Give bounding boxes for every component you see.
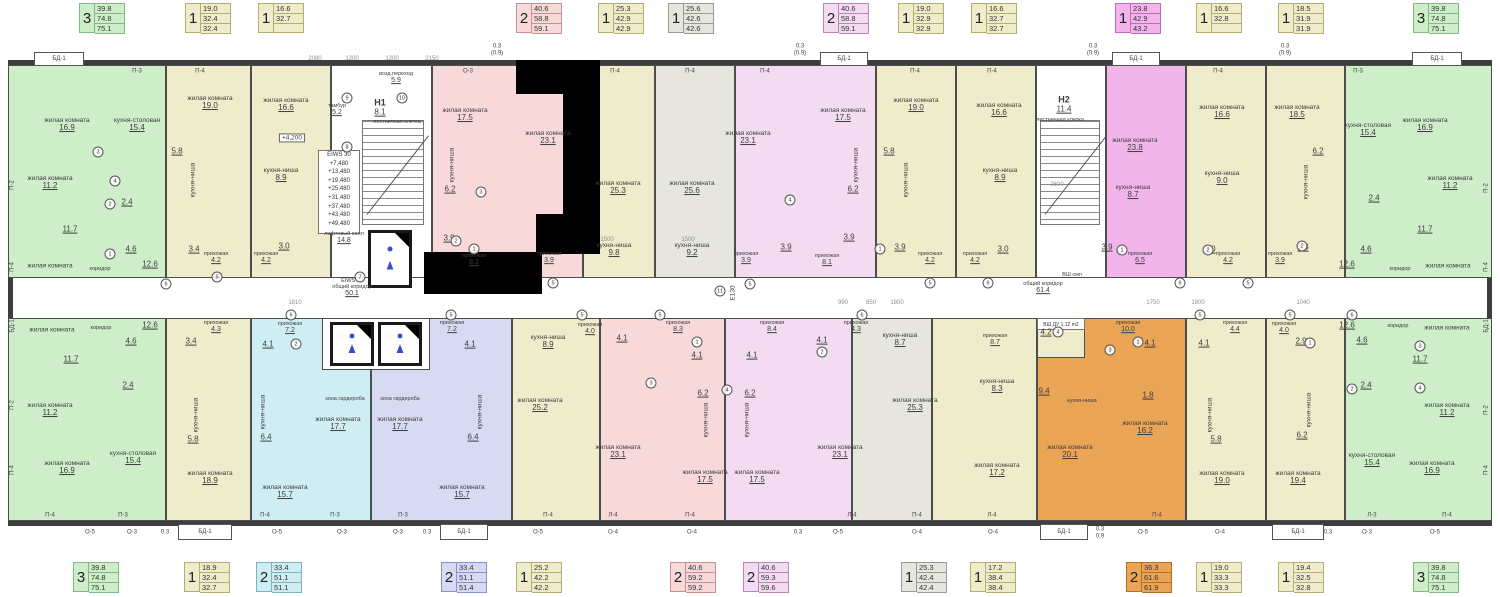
keynote-circle: 1 xyxy=(875,244,886,255)
masked-section-block xyxy=(424,252,542,294)
unit-area-value: 31.9 xyxy=(1294,24,1324,34)
unit-area-value: 19.0 xyxy=(1212,562,1242,573)
masked-section-block xyxy=(563,88,600,218)
axis-label-bottom: П-4 xyxy=(1442,513,1452,520)
unit-area-value: 33.3 xyxy=(1212,573,1242,583)
unit-area-value xyxy=(274,24,304,33)
unit-badge[interactable]: 236.361.661.9 xyxy=(1126,562,1172,592)
unit-area-value: 61.9 xyxy=(1142,583,1172,593)
keynote-circle: 5 xyxy=(212,272,223,283)
unit-area-value: 25.6 xyxy=(684,3,714,14)
dimension-label: 1200 xyxy=(345,56,358,62)
offset-label-bottom: О-4 xyxy=(608,530,618,537)
unit-area-value: 40.6 xyxy=(839,3,869,14)
offset-label-bottom: 0.3 0.9 xyxy=(1096,526,1104,539)
axis-label-left: П-2 xyxy=(10,400,17,410)
keynote-circle: 1 xyxy=(1133,337,1144,348)
apartment-1k-19-0-top-a[interactable] xyxy=(166,65,251,278)
unit-area-value: 51.1 xyxy=(272,573,302,583)
unit-area-value: 59.2 xyxy=(686,583,716,593)
axis-label-top: П-3 xyxy=(1353,69,1363,76)
unit-badge[interactable]: 125.342.442.4 xyxy=(901,562,947,592)
offset-label-bottom: О-5 xyxy=(1138,530,1148,537)
keynote-circle: 2 xyxy=(291,339,302,350)
unit-area-value: 59.1 xyxy=(839,24,869,34)
balcony-bd1: БД-1 xyxy=(1412,52,1462,66)
unit-rooms-count: 1 xyxy=(1278,562,1294,592)
offset-label-top: 0.3 (0.9) xyxy=(1279,43,1291,56)
offset-label-top: 0.3 (0.9) xyxy=(491,43,503,56)
unit-area-value: 19.0 xyxy=(914,3,944,14)
unit-area-value xyxy=(1212,24,1242,33)
axis-label-bottom: П-4 xyxy=(1152,513,1162,520)
offset-label-bottom: О-5 xyxy=(272,530,282,537)
unit-area-value: 75.1 xyxy=(1429,24,1459,34)
unit-rooms-count: 1 xyxy=(970,562,986,592)
elevator xyxy=(330,322,374,366)
unit-badge[interactable]: 116.632.7 xyxy=(258,3,304,33)
dimension-label: 1500 xyxy=(600,237,613,243)
axis-label-right: П-2 xyxy=(1484,183,1491,193)
unit-area-value: 38.4 xyxy=(986,583,1016,593)
unit-badge[interactable]: 339.874.875.1 xyxy=(73,562,119,592)
stair-arrow-line xyxy=(367,135,429,214)
unit-area-value: 61.6 xyxy=(1142,573,1172,583)
keynote-circle: 2 xyxy=(451,236,462,247)
keynote-circle: 6 xyxy=(161,279,172,290)
keynote-circle: 6 xyxy=(857,310,868,321)
unit-badge[interactable]: 240.659.359.6 xyxy=(743,562,789,592)
apartment-1k-17-2[interactable] xyxy=(932,318,1037,521)
unit-area-value: 23.8 xyxy=(1131,3,1161,14)
elevator-person-icon xyxy=(388,246,393,251)
unit-area-value: 75.1 xyxy=(1429,583,1459,593)
unit-area-value: 16.6 xyxy=(987,3,1017,14)
unit-area-value: 42.9 xyxy=(614,24,644,34)
offset-label-bottom: О-5 xyxy=(833,530,843,537)
unit-badge[interactable]: 119.033.333.3 xyxy=(1196,562,1242,592)
unit-area-value: 19.0 xyxy=(201,3,231,14)
keynote-circle: 4 xyxy=(1053,327,1064,338)
offset-label-bottom: О-3 xyxy=(1362,530,1372,537)
unit-badge[interactable]: 125.642.642.6 xyxy=(668,3,714,33)
unit-area-value: 40.6 xyxy=(532,3,562,14)
keynote-circle: 1 xyxy=(1117,245,1128,256)
balcony-bd1: БД-1 xyxy=(1040,524,1088,540)
unit-rooms-count: 1 xyxy=(971,3,987,33)
axis-label-top: П-4 xyxy=(760,69,770,76)
keynote-circle: 5 xyxy=(548,278,559,289)
unit-area-value: 39.8 xyxy=(1429,562,1459,573)
unit-badge[interactable]: 339.874.875.1 xyxy=(79,3,125,33)
unit-area-value: 74.8 xyxy=(1429,573,1459,583)
dimension-label: 1500 xyxy=(681,237,694,243)
unit-badge[interactable]: 240.658.859.1 xyxy=(823,3,869,33)
unit-badge[interactable]: 118.932.432.7 xyxy=(184,562,230,592)
axis-label-bottom: П-4 xyxy=(543,513,553,520)
unit-rooms-count: 2 xyxy=(743,562,759,592)
unit-rooms-count: 3 xyxy=(79,3,95,33)
balcony-bd1: БД-1 xyxy=(34,52,84,66)
axis-label-top: П-4 xyxy=(910,69,920,76)
offset-label-bottom: О-4 xyxy=(687,530,697,537)
keynote-circle: 3 xyxy=(1415,341,1426,352)
keynote-circle: 11 xyxy=(715,286,726,297)
unit-rooms-count: 1 xyxy=(598,3,614,33)
elevator-door-fold xyxy=(405,325,419,339)
offset-label-bottom: О-3 xyxy=(337,530,347,537)
apartment-3k-green-top-left[interactable] xyxy=(8,65,166,278)
keynote-circle: 1 xyxy=(1305,338,1316,349)
axis-label-top: П-4 xyxy=(195,69,205,76)
balcony-bd1: БД-1 xyxy=(178,524,232,540)
elevator-person-icon xyxy=(349,344,356,353)
keynote-circle: 1 xyxy=(469,244,480,255)
unit-area-value: 32.4 xyxy=(200,573,230,583)
unit-badge[interactable]: 125.342.942.9 xyxy=(598,3,644,33)
stairs-graphic xyxy=(362,120,424,225)
masked-section-block xyxy=(536,214,600,254)
unit-rooms-count: 2 xyxy=(441,562,457,592)
dimension-label: 2600 xyxy=(1050,182,1063,188)
axis-label-right: П-2 xyxy=(1484,405,1491,415)
unit-rooms-count: 2 xyxy=(670,562,686,592)
apartment-1k-16-6-top-b[interactable] xyxy=(956,65,1036,278)
unit-area-value: 32.8 xyxy=(1294,583,1324,593)
unit-area-value: 58.8 xyxy=(839,14,869,24)
unit-area-value: 42.6 xyxy=(684,24,714,34)
unit-area-value: 42.9 xyxy=(614,14,644,24)
unit-badge[interactable]: 240.658.859.1 xyxy=(516,3,562,33)
unit-area-value: 74.8 xyxy=(95,14,125,24)
keynote-circle: 8 xyxy=(342,142,353,153)
unit-area-value: 74.8 xyxy=(1429,14,1459,24)
offset-label-bottom: О-5 xyxy=(1430,530,1440,537)
keynote-circle: 2 xyxy=(817,347,828,358)
offset-label-bottom: 0.3 xyxy=(794,530,802,537)
unit-badge[interactable]: 339.874.875.1 xyxy=(1413,3,1459,33)
unit-area-value: 42.6 xyxy=(684,14,714,24)
axis-label-bottom: Л-4 xyxy=(608,513,617,520)
axis-label-left: БД-1 xyxy=(10,319,17,332)
axis-label-bottom: Л-3 xyxy=(1367,513,1376,520)
keynote-circle: 5 xyxy=(655,310,666,321)
offset-label-top: 0.3 (0.9) xyxy=(1087,43,1099,56)
unit-rooms-count: 3 xyxy=(1413,3,1429,33)
keynote-circle: 9 xyxy=(342,93,353,104)
elevator-door-fold xyxy=(357,325,371,339)
axis-label-bottom: П-3 xyxy=(330,513,340,520)
offset-label-bottom: О-3 xyxy=(393,530,403,537)
offset-label-bottom: О-5 xyxy=(85,530,95,537)
dimension-label: 2080 xyxy=(308,56,321,62)
axis-label-bottom: П-4 xyxy=(912,513,922,520)
axis-label-top: П-4 xyxy=(1213,69,1223,76)
unit-area-value: 75.1 xyxy=(95,24,125,34)
unit-area-value: 42.4 xyxy=(917,573,947,583)
keynote-circle: 3 xyxy=(476,187,487,198)
axis-label-top: П-3 xyxy=(132,69,142,76)
unit-area-value: 43.2 xyxy=(1131,24,1161,34)
unit-rooms-count: 2 xyxy=(823,3,839,33)
keynote-circle: 5 xyxy=(1195,310,1206,321)
unit-area-value: 31.9 xyxy=(1294,14,1324,24)
unit-rooms-count: 1 xyxy=(1196,3,1212,33)
unit-area-value: 40.6 xyxy=(759,562,789,573)
unit-area-value: 58.8 xyxy=(532,14,562,24)
balcony-bd1: БД-1 xyxy=(1272,524,1324,540)
elevator-person-icon xyxy=(397,344,404,353)
unit-badge[interactable]: 240.659.259.2 xyxy=(670,562,716,592)
axis-label-bottom: П-3 xyxy=(398,513,408,520)
apartment-1k-19-0-bottom[interactable] xyxy=(1186,318,1266,521)
unit-rooms-count: 1 xyxy=(516,562,532,592)
dimension-label: 1800 xyxy=(1191,300,1204,306)
axis-label-top: П-4 xyxy=(987,69,997,76)
keynote-circle: 5 xyxy=(577,310,588,321)
unit-area-value: 59.3 xyxy=(759,573,789,583)
unit-badge[interactable]: 233.451.151.1 xyxy=(256,562,302,592)
keynote-circle: 6 xyxy=(1347,310,1358,321)
apartment-3k-green-bottom-left[interactable] xyxy=(8,318,166,521)
keynote-circle: 5 xyxy=(446,310,457,321)
dimension-label: 1810 xyxy=(288,300,301,306)
apartment-1k-25-6-top[interactable] xyxy=(655,65,735,278)
elevator-door-fold xyxy=(395,233,409,247)
unit-area-value: 33.4 xyxy=(272,562,302,573)
keynote-circle: 2 xyxy=(1347,384,1358,395)
balcony-bd1: БД-1 xyxy=(820,52,868,66)
keynote-circle: 5 xyxy=(1285,310,1296,321)
keynote-circle: 7 xyxy=(355,272,366,283)
unit-rooms-count: 1 xyxy=(1196,562,1212,592)
unit-area-value: 32.9 xyxy=(914,24,944,34)
balcony-bd1: БД-1 xyxy=(1112,52,1160,66)
unit-area-value: 42.2 xyxy=(532,573,562,583)
unit-badge[interactable]: 233.451.151.4 xyxy=(441,562,487,592)
dimension-label: 1800 xyxy=(890,300,903,306)
offset-label-bottom: О-5 xyxy=(533,530,543,537)
unit-area-value: 39.8 xyxy=(89,562,119,573)
unit-area-value: 59.1 xyxy=(532,24,562,34)
stair-arrow-line xyxy=(1045,136,1107,214)
unit-rooms-count: 2 xyxy=(516,3,532,33)
keynote-circle: 5 xyxy=(745,279,756,290)
unit-area-value: 32.5 xyxy=(1294,573,1324,583)
dimension-label: 990 xyxy=(838,300,848,306)
unit-badge[interactable]: 116.632.732.7 xyxy=(971,3,1017,33)
apartment-3k-green-top-right[interactable] xyxy=(1345,65,1492,278)
unit-rooms-count: 1 xyxy=(901,562,917,592)
offset-label-bottom: О-3 xyxy=(127,530,137,537)
unit-area-value: 32.4 xyxy=(201,24,231,34)
dimension-label: 850 xyxy=(866,300,876,306)
axis-label-top: П-4 xyxy=(685,69,695,76)
unit-area-value: 32.7 xyxy=(987,14,1017,24)
unit-rooms-count: 2 xyxy=(256,562,272,592)
axis-label-bottom: П-4 xyxy=(260,513,270,520)
unit-area-value: 42.2 xyxy=(532,583,562,593)
unit-badge[interactable]: 125.242.242.2 xyxy=(516,562,562,592)
apartment-1k-19-4[interactable] xyxy=(1266,318,1345,521)
unit-area-value: 19.4 xyxy=(1294,562,1324,573)
keynote-circle: 3 xyxy=(646,378,657,389)
unit-badge[interactable]: 118.531.931.9 xyxy=(1278,3,1324,33)
unit-rooms-count: 1 xyxy=(898,3,914,33)
apartment-1k-18-9[interactable] xyxy=(166,318,251,521)
unit-badge[interactable]: 117.238.438.4 xyxy=(970,562,1016,592)
elevator xyxy=(368,230,412,288)
axis-label-top: О-3 xyxy=(463,69,473,76)
unit-badge[interactable]: 339.874.875.1 xyxy=(1413,562,1459,592)
axis-label-left: П-4 xyxy=(10,262,17,272)
axis-label-top: П-4 xyxy=(610,69,620,76)
keynote-circle: 2 xyxy=(1297,241,1308,252)
offset-label-bottom: О-4 xyxy=(1215,530,1225,537)
offset-label-top: 0.3 (0.9) xyxy=(794,43,806,56)
unit-area-value: 39.8 xyxy=(1429,3,1459,14)
unit-badge[interactable]: 119.032.432.4 xyxy=(185,3,231,33)
keynote-circle: 2 xyxy=(105,199,116,210)
dimension-label: 2150 xyxy=(425,56,438,62)
unit-area-value: 16.6 xyxy=(1212,3,1242,14)
unit-badge[interactable]: 116.632.8 xyxy=(1196,3,1242,33)
unit-badge[interactable]: 119.032.932.9 xyxy=(898,3,944,33)
offset-label-bottom: О-4 xyxy=(912,530,922,537)
unit-area-value: 16.6 xyxy=(274,3,304,14)
unit-area-value: 18.5 xyxy=(1294,3,1324,14)
unit-rooms-count: 1 xyxy=(668,3,684,33)
keynote-circle: 1 xyxy=(692,337,703,348)
keynote-circle: 4 xyxy=(110,176,121,187)
dimension-label: 1040 xyxy=(1296,300,1309,306)
axis-label-right: БД-1 xyxy=(1484,319,1491,332)
keynote-circle: 3 xyxy=(93,147,104,158)
unit-area-value: 32.9 xyxy=(914,14,944,24)
unit-badge[interactable]: 123.842.943.2 xyxy=(1115,3,1161,33)
axis-label-bottom: Л-4 xyxy=(847,513,856,520)
axis-label-right: П-4 xyxy=(1484,262,1491,272)
unit-area-value: 51.4 xyxy=(457,583,487,593)
keynote-circle: 6 xyxy=(983,278,994,289)
keynote-circle: 1 xyxy=(105,249,116,260)
unit-rooms-count: 1 xyxy=(1115,3,1131,33)
unit-area-value: 25.3 xyxy=(614,3,644,14)
keynote-circle: 4 xyxy=(1415,383,1426,394)
unit-area-value: 42.4 xyxy=(917,583,947,593)
apartment-1k-25-2[interactable] xyxy=(512,318,600,521)
axis-label-right: П-4 xyxy=(1484,465,1491,475)
axis-label-left: П-2 xyxy=(10,180,17,190)
unit-area-value: 39.8 xyxy=(95,3,125,14)
keynote-circle: 3 xyxy=(1105,345,1116,356)
unit-area-value: 51.1 xyxy=(457,573,487,583)
apartment-2k-40-6-violet-bottom[interactable] xyxy=(725,318,852,521)
keynote-circle: 6 xyxy=(286,310,297,321)
unit-area-value: 75.1 xyxy=(89,583,119,593)
keynote-circle: 6 xyxy=(1175,278,1186,289)
elevator-person-icon xyxy=(398,334,403,339)
keynote-circle: 10 xyxy=(397,93,408,104)
unit-area-value: 42.9 xyxy=(1131,14,1161,24)
unit-area-value: 32.7 xyxy=(274,14,304,24)
unit-rooms-count: 1 xyxy=(1278,3,1294,33)
unit-rooms-count: 3 xyxy=(1413,562,1429,592)
balcony-bd1: БД-1 xyxy=(440,524,488,540)
unit-area-value: 33.3 xyxy=(1212,583,1242,593)
unit-area-value: 59.2 xyxy=(686,573,716,583)
axis-label-bottom: Л-4 xyxy=(987,513,996,520)
apartment-1k-25-3-bottom[interactable] xyxy=(852,318,932,521)
unit-rooms-count: 1 xyxy=(185,3,201,33)
axis-label-bottom: П-4 xyxy=(685,513,695,520)
dimension-label: 1750 xyxy=(1146,300,1159,306)
unit-badge[interactable]: 119.432.532.8 xyxy=(1278,562,1324,592)
unit-rooms-count: 1 xyxy=(184,562,200,592)
unit-area-value: 32.4 xyxy=(201,14,231,24)
unit-rooms-count: 1 xyxy=(258,3,274,33)
unit-area-value: 17.2 xyxy=(986,562,1016,573)
keynote-circle: 4 xyxy=(722,385,733,396)
elevator-person-icon xyxy=(387,261,394,270)
unit-area-value: 74.8 xyxy=(89,573,119,583)
offset-label-bottom: 0.3 xyxy=(161,530,169,537)
keynote-circle: 4 xyxy=(785,195,796,206)
axis-label-left: П-4 xyxy=(10,465,17,475)
apartment-2k-40-6-violet-top[interactable] xyxy=(735,65,876,278)
elevator xyxy=(378,322,422,366)
elevation-levels-box: EIWS 30+7,480+13,480+19,480+25,480+31,48… xyxy=(318,150,360,234)
offset-label-bottom: 0.3 xyxy=(423,530,431,537)
axis-label-bottom: П-3 xyxy=(118,513,128,520)
unit-area-value: 59.6 xyxy=(759,583,789,593)
keynote-circle: 2 xyxy=(1203,245,1214,256)
unit-area-value: 51.1 xyxy=(272,583,302,593)
unit-area-value: 25.2 xyxy=(532,562,562,573)
apartment-1k-19-0-top-b[interactable] xyxy=(876,65,956,278)
apartment-1k-16-6-top-c[interactable] xyxy=(1186,65,1266,278)
unit-area-value: 18.9 xyxy=(200,562,230,573)
offset-label-bottom: О-4 xyxy=(988,530,998,537)
unit-area-value: 33.4 xyxy=(457,562,487,573)
unit-area-value: 38.4 xyxy=(986,573,1016,583)
dimension-label: 1200 xyxy=(385,56,398,62)
unit-area-value: 25.3 xyxy=(917,562,947,573)
unit-area-value: 32.7 xyxy=(200,583,230,593)
keynote-circle: 5 xyxy=(925,278,936,289)
unit-area-value: 32.8 xyxy=(1212,14,1242,24)
apartment-2k-40-6-pink-bottom[interactable] xyxy=(600,318,725,521)
unit-area-value: 36.3 xyxy=(1142,562,1172,573)
offset-label-bottom: 0.3 xyxy=(1324,530,1332,537)
unit-rooms-count: 3 xyxy=(73,562,89,592)
floor-plan-page: EIWS 30+7,480+13,480+19,480+25,480+31,48… xyxy=(0,0,1500,597)
elevator-person-icon xyxy=(350,334,355,339)
unit-area-value: 40.6 xyxy=(686,562,716,573)
unit-rooms-count: 2 xyxy=(1126,562,1142,592)
unit-area-value: 32.7 xyxy=(987,24,1017,34)
stairs-graphic xyxy=(1040,120,1100,225)
axis-label-bottom: П-4 xyxy=(45,513,55,520)
keynote-circle: 5 xyxy=(1243,278,1254,289)
